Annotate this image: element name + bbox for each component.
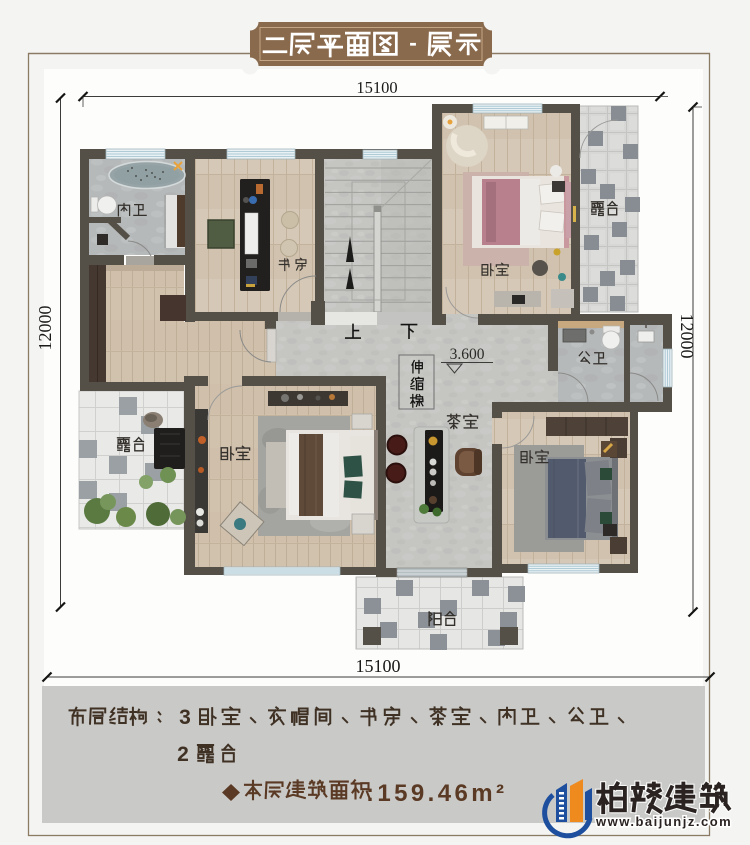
svg-text::159.46m²: :159.46m² — [366, 780, 507, 807]
svg-text:12000: 12000 — [35, 306, 55, 351]
svg-text:15100: 15100 — [356, 78, 397, 97]
svg-text:12000: 12000 — [677, 314, 697, 359]
svg-text:3: 3 — [179, 706, 191, 729]
svg-text:www.baijunjz.com: www.baijunjz.com — [595, 814, 732, 829]
svg-text:3.600: 3.600 — [450, 346, 485, 363]
svg-text:2: 2 — [177, 743, 189, 766]
svg-text:15100: 15100 — [356, 656, 401, 676]
